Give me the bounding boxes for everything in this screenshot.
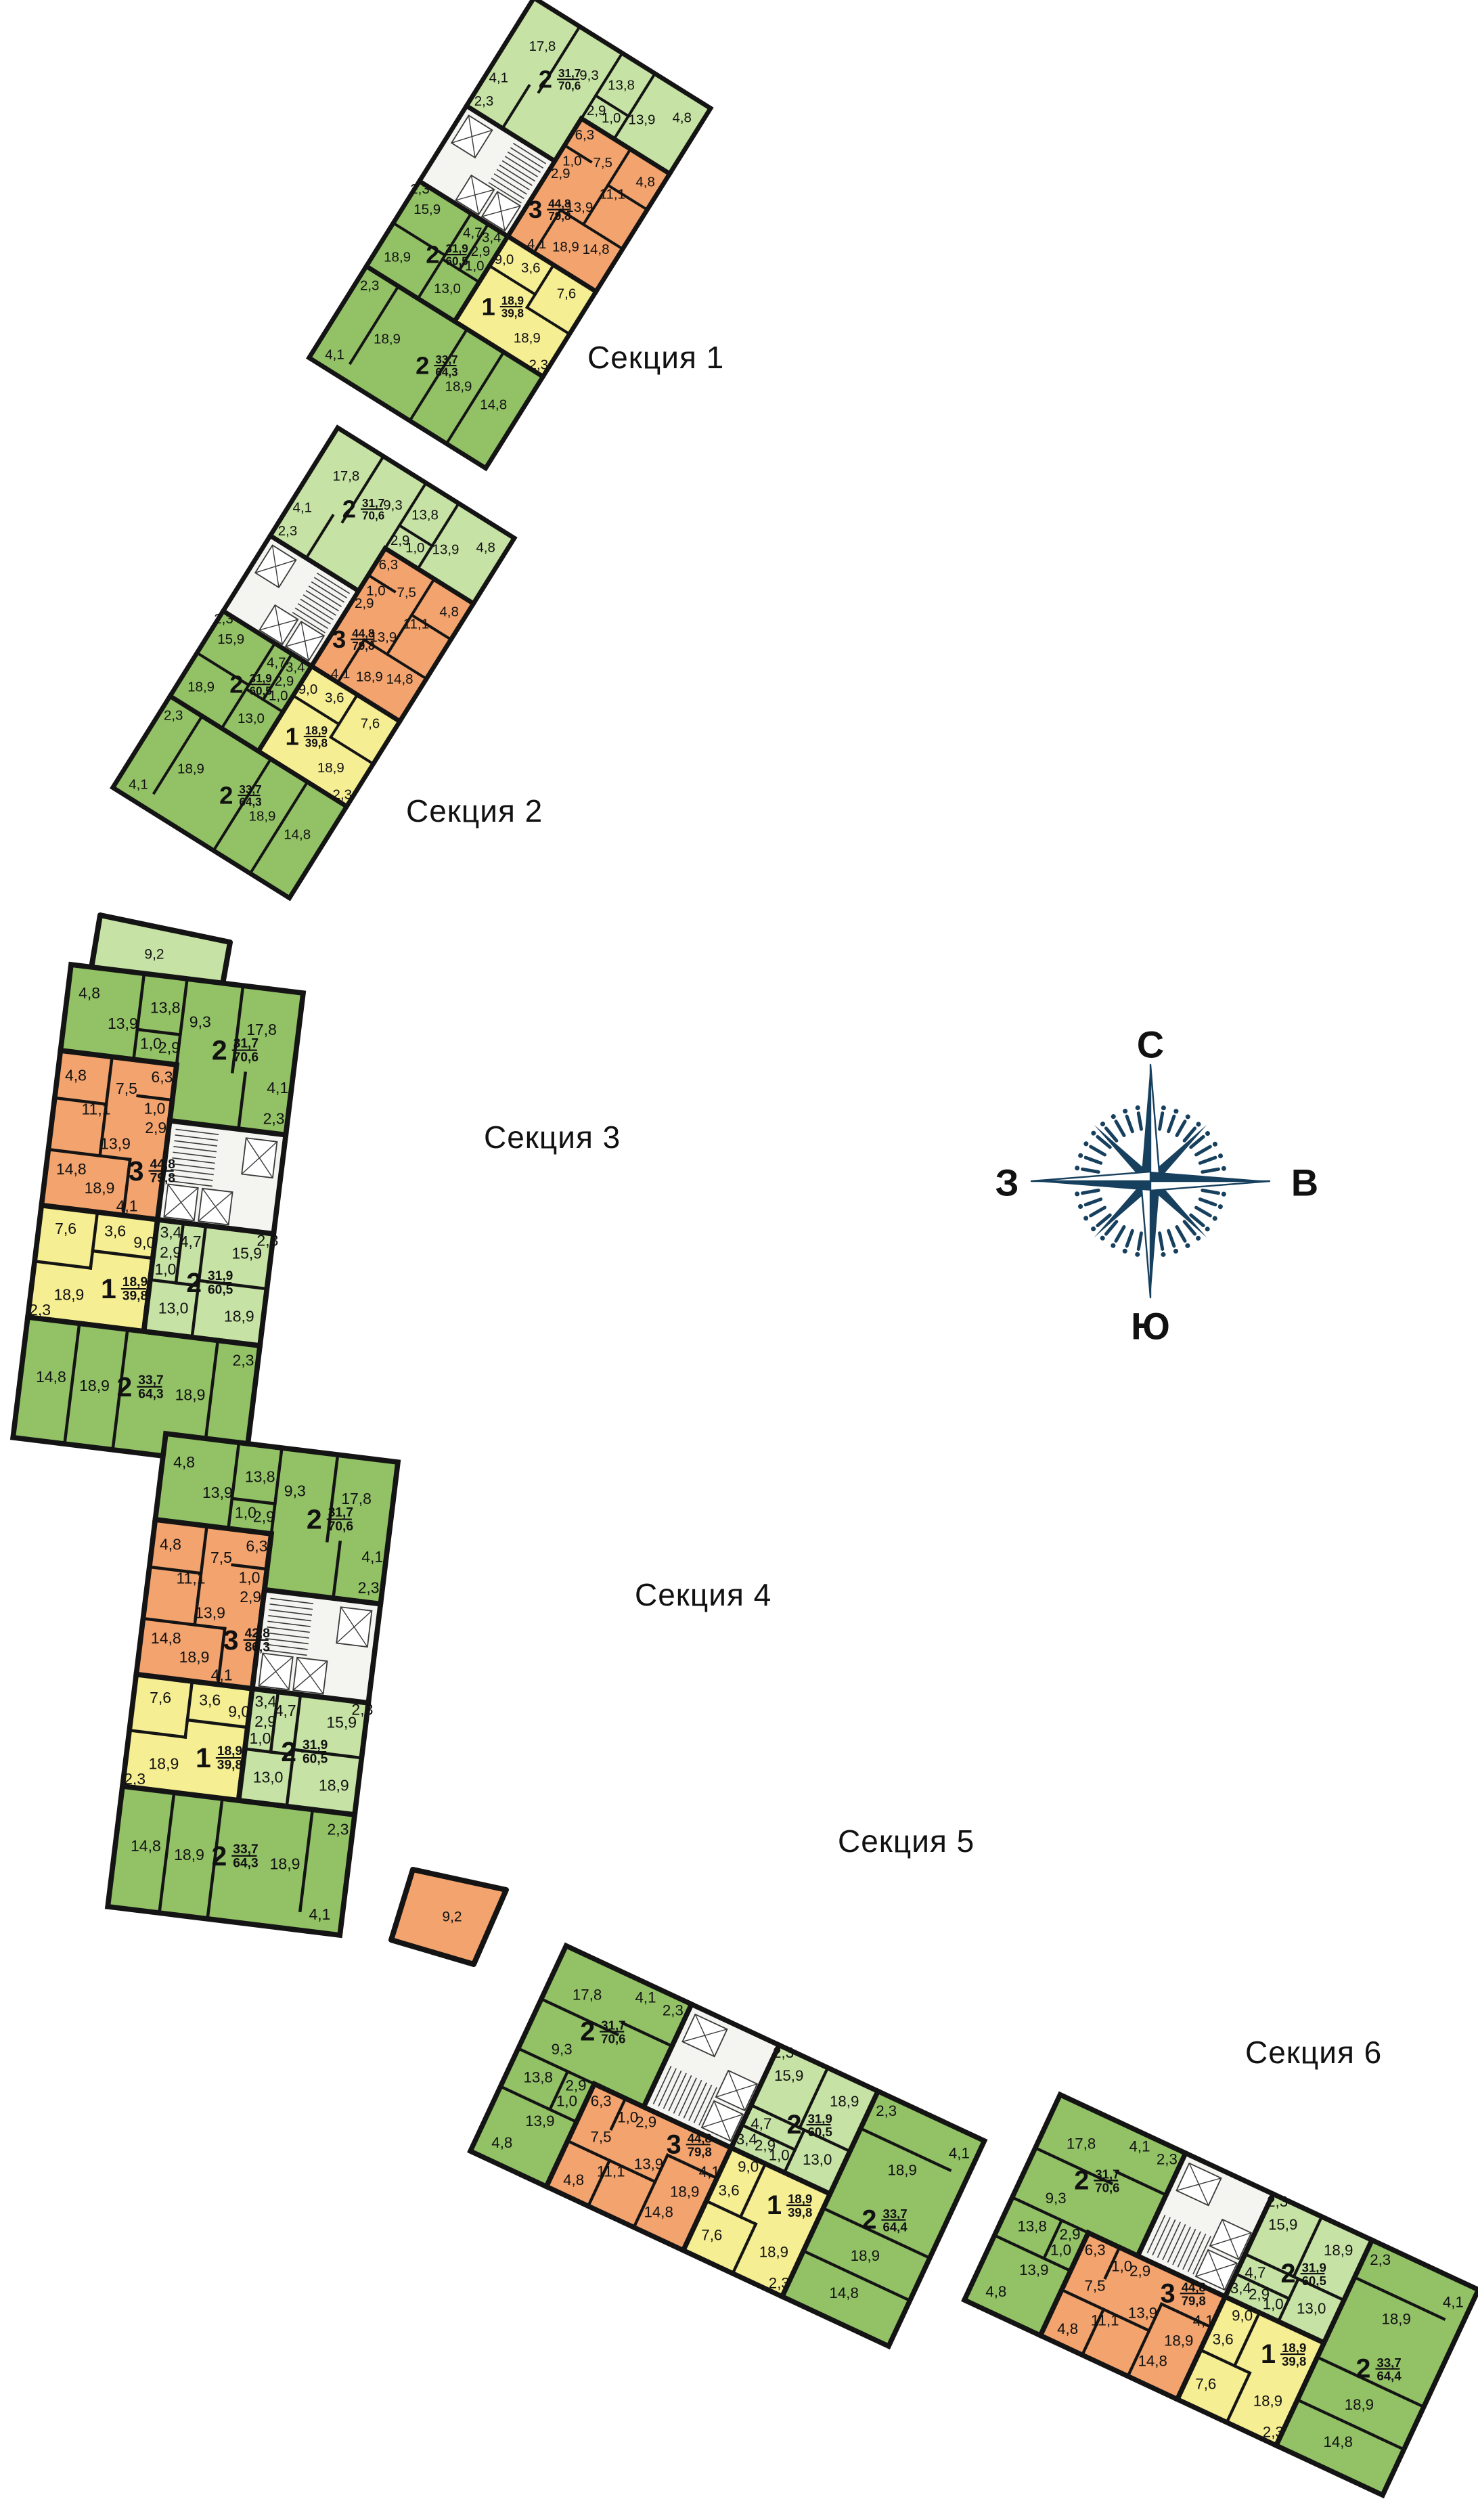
unit-badge-orange: 344,879,8 (667, 2129, 712, 2159)
room-area-label: 9,0 (495, 252, 514, 267)
room-area-label: 4,8 (160, 1535, 181, 1553)
compass-tick (1177, 1227, 1185, 1241)
floor-plan-svg: 9,29,29,24,813,913,81,02,99,317,84,12,31… (0, 0, 1478, 2520)
unit-type-number: 2 (1074, 2166, 1089, 2196)
room-area-label: 4,1 (116, 1197, 138, 1214)
room-area-label: 18,9 (174, 1846, 204, 1863)
section-5: 4,813,913,81,02,99,317,84,12,314,84,811,… (470, 1946, 985, 2347)
room-area-label: 4,1 (331, 666, 351, 682)
room-area-label: 2,9 (390, 533, 410, 548)
room-area-label: 13,9 (202, 1484, 233, 1501)
room-area-label: 14,8 (644, 2204, 673, 2221)
unit-total-area: 64,3 (239, 795, 261, 808)
room-area-label: 14,8 (583, 242, 610, 257)
unit-type-number: 1 (196, 1742, 211, 1773)
room-area-label: 13,0 (434, 281, 461, 296)
room-area-label: 14,8 (131, 1837, 161, 1855)
unit-living-area: 18,9 (1282, 2341, 1306, 2355)
compass-tick (1085, 1199, 1101, 1205)
unit-living-area: 33,7 (138, 1373, 163, 1388)
room-area-label: 3,4 (286, 660, 305, 676)
room-area-label: 7,6 (1195, 2375, 1216, 2392)
room-area-label: 18,9 (1324, 2242, 1353, 2259)
compass-tick (1091, 1208, 1105, 1216)
unit-total-area: 79,8 (1182, 2293, 1206, 2307)
compass-cardinal-light-half (1141, 1181, 1150, 1298)
room-area-label: 2,3 (410, 181, 430, 197)
room-area-label: 3,6 (104, 1222, 126, 1240)
room-area-label: 17,8 (246, 1021, 277, 1038)
room-area-label: 4,8 (439, 604, 459, 620)
room-area-label: 13,9 (100, 1135, 131, 1153)
bend-area-label: 9,2 (442, 1909, 462, 1925)
compass-tick (1203, 1191, 1219, 1193)
room-area-label: 4,1 (635, 1989, 656, 2006)
room-area-label: 9,3 (579, 68, 599, 83)
room-area-label: 6,3 (575, 127, 595, 143)
room-area-label: 1,0 (144, 1100, 166, 1118)
room-area-label: 13,9 (108, 1015, 138, 1032)
compass-tick (1127, 1231, 1132, 1246)
room-area-label: 13,8 (608, 77, 635, 93)
room-area-label: 13,9 (1128, 2304, 1157, 2321)
room-area-label: 18,9 (851, 2247, 880, 2264)
compass-cardinal-dark-half (1031, 1181, 1150, 1191)
room-area-label: 13,0 (238, 711, 265, 726)
room-area-label: 18,9 (175, 1386, 206, 1404)
room-area-label: 14,8 (829, 2284, 858, 2301)
unit-total-area: 70,6 (558, 79, 581, 92)
room-area-label: 2,9 (1060, 2226, 1081, 2243)
unit-badge-g70: 231,770,6 (307, 1504, 353, 1535)
room-area-label: 4,1 (361, 1548, 383, 1566)
room-area-label: 11,1 (597, 2163, 625, 2180)
unit-total-area: 79,8 (150, 1171, 176, 1185)
room-area-label: 2,9 (587, 103, 606, 118)
unit-type-number: 2 (212, 1035, 227, 1066)
room-area-label: 2,3 (351, 1701, 373, 1719)
compass-tick (1127, 1116, 1132, 1132)
room-area-label: 15,9 (413, 202, 441, 217)
room-area-label: 7,5 (116, 1080, 137, 1097)
unit-type-number: 3 (332, 625, 346, 653)
room-area-label: 4,8 (635, 175, 655, 190)
unit-total-area: 60,5 (303, 1752, 328, 1767)
unit-type-number: 1 (1261, 2339, 1276, 2369)
unit-living-area: 33,7 (435, 353, 457, 366)
unit-living-area: 44,8 (1182, 2280, 1206, 2295)
room-area-label: 13,9 (525, 2113, 554, 2129)
room-area-label: 4,8 (476, 539, 495, 555)
room-area-label: 18,9 (317, 760, 344, 776)
room-area-label: 14,8 (386, 671, 413, 687)
room-area-label: 6,3 (151, 1068, 173, 1086)
room-area-label: 18,9 (149, 1755, 179, 1773)
unit-type-number: 2 (211, 1840, 227, 1872)
room-area-label: 13,0 (1297, 2300, 1326, 2317)
unit-living-area: 33,7 (239, 783, 261, 796)
room-area-label: 18,9 (356, 669, 383, 685)
unit-total-area: 86,3 (245, 1640, 270, 1654)
unit-badge-yellow: 118,939,8 (196, 1742, 242, 1773)
room-area-label: 4,8 (1057, 2320, 1078, 2337)
unit-badge-yellow: 118,939,8 (767, 2190, 812, 2220)
room-area-label: 4,8 (65, 1066, 87, 1084)
compass-cardinal-light-half (1150, 1065, 1160, 1181)
unit-living-area: 31,9 (303, 1738, 328, 1752)
room-area-label: 2,9 (551, 166, 570, 181)
unit-type-number: 2 (342, 495, 356, 523)
room-area-label: 17,8 (573, 1987, 602, 2004)
room-area-label: 18,9 (270, 1855, 300, 1873)
room-area-label: 2,9 (158, 1038, 180, 1056)
room-area-label: 7,6 (701, 2226, 722, 2243)
room-area-label: 6,3 (246, 1537, 267, 1555)
unit-badge-g70: 231,770,6 (212, 1035, 259, 1066)
room-area-label: 2,9 (145, 1119, 166, 1136)
room-area-label: 18,9 (79, 1377, 110, 1394)
unit-type-number: 2 (861, 2205, 876, 2235)
room-area-label: 2,3 (1370, 2251, 1391, 2268)
unit-total-area: 64,3 (138, 1387, 163, 1401)
unit-total-area: 70,6 (328, 1520, 353, 1534)
room-area-label: 4,8 (985, 2283, 1006, 2300)
unit-badge-yellow: 118,939,8 (101, 1273, 148, 1304)
room-area-label: 11,1 (600, 187, 625, 202)
room-area-label: 13,8 (411, 507, 439, 523)
room-area-label: 4,1 (1443, 2294, 1464, 2311)
unit-living-area: 31,9 (1302, 2260, 1326, 2274)
room-area-label: 13,9 (1019, 2261, 1048, 2278)
room-area-label: 2,3 (124, 1770, 145, 1788)
room-area-label: 11,1 (403, 617, 429, 632)
unit-badge-g70: 231,770,6 (580, 2017, 625, 2047)
room-area-label: 18,9 (1253, 2392, 1282, 2409)
room-area-label: 3,4 (255, 1692, 277, 1710)
room-area-label: 7,6 (150, 1689, 171, 1706)
unit-total-area: 70,6 (1095, 2181, 1119, 2195)
room-area-label: 14,8 (1138, 2353, 1167, 2370)
unit-total-area: 39,8 (501, 307, 524, 319)
room-area-label: 4,1 (129, 777, 148, 793)
unit-badge-orange: 344,879,8 (332, 625, 375, 653)
room-area-label: 4,1 (211, 1666, 233, 1683)
room-area-label: 2,3 (233, 1352, 254, 1369)
room-area-label: 1,0 (250, 1729, 271, 1747)
room-area-label: 9,3 (383, 498, 403, 513)
room-area-label: 11,1 (81, 1101, 110, 1118)
room-area-label: 13,8 (245, 1468, 275, 1486)
unit-badge-orange: 342,886,3 (223, 1624, 270, 1656)
compass-rose: СЮЗВ (995, 1023, 1318, 1348)
unit-badge-g60: 231,960,5 (1281, 2259, 1326, 2289)
unit-living-area: 42,8 (245, 1627, 271, 1641)
room-area-label: 14,8 (56, 1160, 87, 1178)
unit-badge-yellow: 118,939,8 (285, 723, 328, 751)
unit-living-area: 44,8 (688, 2131, 712, 2146)
unit-type-number: 3 (129, 1155, 144, 1187)
room-area-label: 4,7 (1245, 2264, 1266, 2281)
unit-badge-yellow: 118,939,8 (481, 293, 524, 321)
room-area-label: 7,6 (55, 1220, 76, 1237)
unit-total-area: 60,5 (1302, 2274, 1326, 2288)
unit-living-area: 18,9 (501, 294, 524, 307)
room-area-label: 9,0 (133, 1234, 155, 1252)
room-area-label: 4,1 (309, 1905, 331, 1923)
unit-badge-g64: 233,764,4 (861, 2205, 908, 2235)
room-area-label: 3,4 (482, 230, 501, 246)
room-area-label: 17,8 (529, 39, 556, 54)
unit-type-number: 2 (307, 1504, 322, 1535)
room-area-label: 13,0 (803, 2151, 832, 2168)
compass-tick (1083, 1169, 1099, 1172)
room-area-label: 14,8 (284, 827, 311, 843)
room-area-label: 9,3 (189, 1013, 211, 1031)
unit-type-number: 1 (285, 723, 298, 751)
bend-wedge-group-2: 9,2 (391, 1870, 506, 1964)
compass-tick (1196, 1147, 1211, 1155)
room-area-label: 4,7 (180, 1233, 202, 1250)
compass-tick (1200, 1199, 1215, 1205)
room-area-label: 2,9 (566, 2077, 587, 2094)
room-area-label: 2,9 (253, 1507, 275, 1525)
room-area-label: 1,0 (1050, 2242, 1071, 2259)
unit-total-area: 60,5 (808, 2125, 832, 2139)
unit-living-area: 33,7 (1377, 2356, 1402, 2370)
compass-tick (1091, 1147, 1105, 1155)
room-area-label: 9,3 (1046, 2190, 1067, 2207)
room-area-label: 2,3 (256, 1232, 278, 1250)
unit-badge-orange: 344,879,8 (1161, 2278, 1206, 2308)
room-area-label: 15,9 (217, 632, 244, 647)
unit-total-area: 70,6 (362, 509, 384, 522)
room-area-label: 4,1 (1129, 2138, 1150, 2155)
room-area-label: 9,0 (228, 1703, 250, 1721)
unit-total-area: 39,8 (217, 1759, 243, 1773)
room-area-label: 4,8 (563, 2171, 584, 2188)
room-area-label: 2,3 (214, 611, 233, 627)
room-area-label: 4,8 (672, 110, 692, 125)
room-area-label: 9,0 (1232, 2307, 1253, 2324)
room-area-label: 4,8 (79, 984, 100, 1002)
room-area-label: 7,6 (557, 286, 577, 302)
room-area-label: 14,8 (1323, 2433, 1352, 2450)
unit-type-number: 2 (416, 352, 429, 380)
room-area-label: 3,6 (1213, 2330, 1234, 2347)
room-area-label: 7,6 (361, 716, 380, 732)
unit-living-area: 18,9 (217, 1744, 242, 1759)
unit-type-number: 2 (539, 66, 552, 93)
compass-tick (1083, 1191, 1099, 1193)
unit-total-area: 64,4 (883, 2220, 908, 2234)
room-area-label: 4,1 (699, 2163, 720, 2180)
room-area-label: 2,3 (333, 787, 353, 802)
unit-living-area: 44,8 (548, 198, 570, 211)
compass-tick (1169, 1231, 1174, 1246)
room-area-label: 2,3 (876, 2102, 897, 2119)
room-area-label: 11,1 (176, 1570, 205, 1587)
unit-living-area: 33,7 (883, 2207, 908, 2221)
section-label-3: Секция 3 (484, 1120, 621, 1155)
room-area-label: 18,9 (1381, 2311, 1410, 2328)
unit-badge-g64: 233,764,3 (219, 782, 262, 810)
room-area-label: 14,8 (480, 397, 507, 413)
unit-total-area: 79,8 (688, 2144, 712, 2159)
room-area-label: 13,8 (1017, 2217, 1046, 2234)
room-area-label: 4,8 (491, 2134, 512, 2151)
room-area-label: 13,9 (629, 112, 656, 128)
unit-living-area: 31,7 (328, 1506, 353, 1520)
room-area-label: 1,0 (556, 2093, 577, 2110)
compass-tick (1177, 1122, 1185, 1136)
section-label-4: Секция 4 (635, 1577, 771, 1612)
room-area-label: 2,9 (160, 1243, 181, 1261)
room-area-label: 9,0 (738, 2159, 759, 2175)
room-area-label: 18,9 (249, 809, 276, 824)
room-area-label: 2,9 (275, 673, 294, 689)
room-area-label: 2,3 (663, 2002, 684, 2019)
room-area-label: 4,7 (267, 655, 286, 671)
room-area-label: 7,5 (397, 585, 416, 600)
unit-badge-g64: 233,764,4 (1356, 2354, 1402, 2384)
room-area-label: 17,8 (332, 468, 359, 484)
unit-type-number: 2 (116, 1371, 132, 1402)
unit-total-area: 60,5 (446, 255, 469, 267)
room-area-label: 4,1 (293, 500, 313, 515)
unit-badge-g60: 231,960,5 (281, 1736, 328, 1767)
unit-badge-g64: 233,764,3 (116, 1371, 163, 1402)
unit-badge-g70: 231,770,6 (342, 495, 385, 523)
unit-type-number: 3 (223, 1624, 239, 1656)
unit-badge-g70: 231,770,6 (1074, 2166, 1119, 2196)
unit-total-area: 79,8 (352, 640, 374, 653)
compass-tick (1200, 1157, 1215, 1163)
unit-total-area: 60,5 (250, 684, 273, 697)
room-area-label: 18,9 (514, 330, 541, 346)
unit-living-area: 44,8 (150, 1157, 176, 1172)
room-area-label: 13,9 (634, 2155, 663, 2172)
room-area-label: 4,1 (267, 1079, 288, 1097)
room-area-label: 13,8 (523, 2069, 552, 2085)
unit-living-area: 44,8 (352, 627, 374, 640)
compass-tick (1196, 1208, 1211, 1216)
room-area-label: 3,4 (160, 1223, 182, 1241)
unit-total-area: 39,8 (1282, 2354, 1306, 2368)
room-area-label: 2,3 (360, 278, 380, 293)
room-area-label: 18,9 (374, 332, 401, 347)
unit-type-number: 2 (281, 1736, 296, 1767)
unit-living-area: 31,9 (208, 1269, 233, 1283)
compass-tick (1203, 1169, 1219, 1172)
room-area-label: 11,1 (1091, 2312, 1119, 2328)
unit-type-number: 1 (101, 1273, 116, 1304)
room-area-label: 13,9 (195, 1604, 225, 1622)
unit-type-number: 2 (219, 782, 233, 810)
unit-type-number: 3 (1161, 2278, 1175, 2308)
room-area-label: 18,9 (187, 680, 215, 695)
room-area-label: 2,3 (358, 1579, 380, 1597)
compass-tick (1169, 1116, 1174, 1132)
room-area-label: 18,9 (445, 379, 472, 395)
section-3: 4,813,913,81,02,99,317,84,12,314,84,811,… (13, 965, 303, 1466)
unit-living-area: 31,7 (601, 2018, 625, 2033)
section-1: 4,813,913,81,02,99,317,84,12,314,84,811,… (309, 0, 711, 468)
room-area-label: 4,1 (949, 2145, 970, 2162)
room-area-label: 18,9 (177, 761, 204, 777)
unit-total-area: 70,6 (601, 2032, 625, 2046)
unit-living-area: 31,7 (362, 497, 384, 510)
compass-tick (1116, 1122, 1124, 1136)
section-4: 4,813,913,81,02,99,317,84,12,314,84,811,… (108, 1434, 398, 1935)
unit-living-area: 31,9 (250, 672, 272, 685)
unit-living-area: 31,9 (808, 2111, 832, 2125)
room-area-label: 18,9 (552, 240, 579, 255)
room-area-label: 2,3 (773, 2044, 794, 2061)
room-area-label: 14,8 (151, 1629, 181, 1647)
section-label-1: Секция 1 (587, 340, 724, 375)
room-area-label: 2,3 (1267, 2193, 1288, 2210)
room-area-label: 2,9 (1129, 2262, 1150, 2279)
room-area-label: 3,6 (719, 2182, 740, 2198)
unit-total-area: 64,4 (1377, 2369, 1402, 2383)
room-area-label: 4,1 (325, 347, 344, 363)
room-area-label: 1,0 (239, 1569, 261, 1587)
compass-tick (1138, 1113, 1141, 1130)
compass-cardinal-dark-half (1141, 1065, 1150, 1181)
room-area-label: 1,0 (1263, 2296, 1284, 2313)
section-6: 4,813,913,81,02,99,317,84,12,314,84,811,… (964, 2095, 1478, 2496)
unit-living-area: 33,7 (233, 1842, 258, 1857)
room-area-label: 4,7 (751, 2115, 771, 2132)
room-area-label: 18,9 (85, 1179, 115, 1197)
room-area-label: 18,9 (887, 2162, 916, 2179)
unit-type-number: 2 (229, 671, 243, 699)
unit-badge-g60: 231,960,5 (186, 1267, 233, 1298)
unit-living-area: 31,7 (1095, 2167, 1119, 2182)
section-label-2: Секция 2 (406, 793, 543, 828)
compass-label-south: Ю (1131, 1305, 1170, 1348)
unit-living-area: 31,7 (558, 67, 581, 80)
room-area-label: 9,3 (284, 1482, 306, 1500)
room-area-label: 7,5 (210, 1549, 232, 1566)
compass-label-north: С (1137, 1023, 1164, 1066)
room-area-label: 2,9 (635, 2113, 656, 2130)
compass-tick (1160, 1113, 1163, 1130)
room-area-label: 2,3 (474, 93, 494, 109)
room-area-label: 2,9 (471, 244, 491, 259)
room-area-label: 18,9 (54, 1286, 85, 1304)
room-area-label: 4,1 (527, 236, 547, 252)
unit-badge-orange: 344,879,8 (129, 1155, 175, 1187)
room-area-label: 2,3 (164, 707, 183, 723)
room-area-label: 2,9 (240, 1588, 261, 1606)
room-area-label: 4,1 (1193, 2312, 1214, 2329)
room-area-label: 18,9 (179, 1648, 210, 1666)
room-area-label: 4,8 (173, 1453, 195, 1471)
unit-type-number: 2 (186, 1267, 202, 1298)
unit-total-area: 70,6 (233, 1051, 259, 1065)
room-area-label: 2,3 (769, 2275, 790, 2292)
room-area-label: 6,3 (379, 557, 399, 573)
room-area-label: 4,1 (489, 70, 509, 85)
unit-badge-g70: 231,770,6 (539, 66, 581, 93)
room-area-label: 2,3 (278, 523, 298, 539)
unit-total-area: 39,8 (788, 2205, 812, 2219)
room-area-label: 14,8 (36, 1368, 66, 1386)
room-area-label: 18,9 (670, 2184, 699, 2201)
unit-total-area: 39,8 (122, 1289, 148, 1304)
bend-area-label: 9,2 (144, 947, 164, 963)
